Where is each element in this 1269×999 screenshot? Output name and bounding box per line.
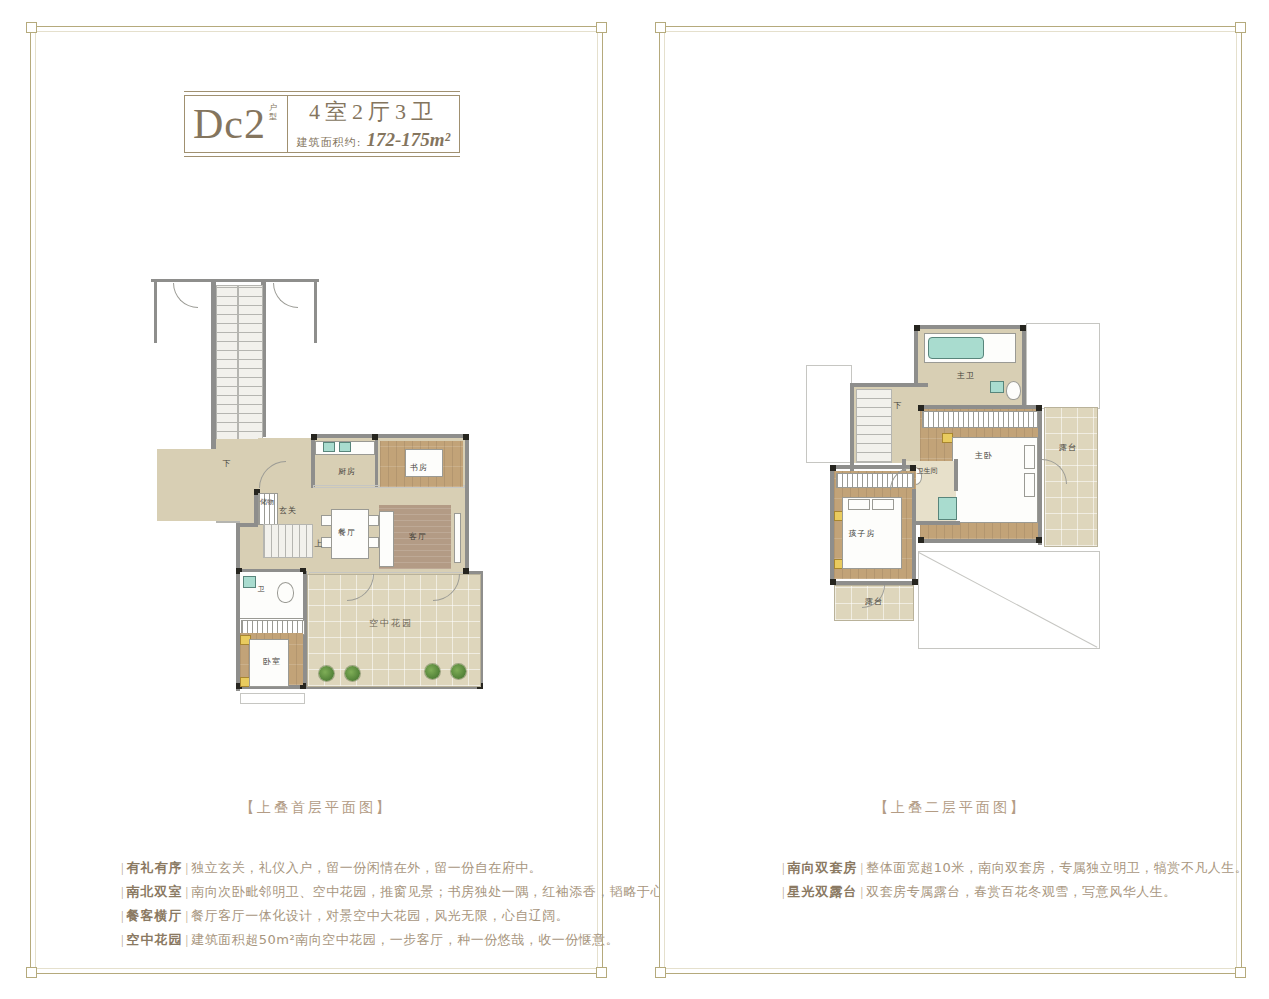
unit-spec-cell: 4室2厅3卫 建筑面积约: 172-175m² — [288, 96, 459, 152]
wall-segment — [465, 438, 469, 574]
sink-icon — [339, 442, 351, 452]
bracket: | — [183, 908, 192, 923]
bracket: | — [183, 884, 192, 899]
feature-text: 餐厅客厅一体化设计，对景空中大花园，风光无限，心自辽阔。 — [191, 908, 569, 923]
sink-icon — [323, 442, 335, 452]
roof-outline — [806, 365, 852, 463]
floor-plan-first-floor: 下 厨房 书房 储物 玄关 餐厅 客厅 上 卫 卧室 空中花园 — [151, 271, 481, 701]
wall-segment — [850, 383, 854, 471]
wall-segment — [914, 325, 1026, 329]
feature-text: 建筑面积超50m²南向空中花园，一步客厅，种一份悠哉，收一份惬意。 — [191, 932, 619, 947]
feature-bullet: |有礼有序|独立玄关，礼仪入户，留一份闲情在外，留一份自在府中。 — [31, 856, 602, 880]
wall-segment — [954, 459, 958, 491]
feature-text: 整体面宽超10米，南向双套房，专属独立明卫，犒赏不凡人生。 — [866, 860, 1248, 875]
wall-segment — [918, 539, 1042, 543]
door-arc — [173, 283, 198, 308]
unit-area-value: 172-175m² — [367, 129, 451, 150]
bracket: | — [183, 860, 192, 875]
sink-icon — [990, 381, 1004, 393]
stairs — [856, 389, 892, 463]
feature-bullet: |南向双套房|整体面宽超10米，南向双套房，专属独立明卫，犒赏不凡人生。 — [660, 856, 1241, 880]
feature-title: 餐客横厅 — [127, 908, 183, 923]
feature-text: 独立玄关，礼仪入户，留一份闲情在外，留一份自在府中。 — [191, 860, 542, 875]
frame-corner — [596, 967, 607, 978]
wall-corner-block — [918, 405, 924, 411]
wall-corner-block — [830, 579, 836, 585]
bedroom-label: 卧室 — [263, 656, 281, 667]
sky-garden-label: 空中花园 — [369, 617, 413, 630]
wall-corner-block — [372, 434, 378, 440]
wall-corner-block — [830, 465, 836, 471]
frame-corner — [1235, 967, 1246, 978]
wall-segment — [850, 383, 928, 387]
pillow — [1024, 473, 1035, 497]
plan-caption-first-floor: 【上叠首层平面图】 — [31, 799, 602, 817]
balcony-outline — [240, 693, 305, 704]
chair — [368, 515, 379, 526]
pillow — [872, 499, 894, 510]
plan-caption-second-floor: 【上叠二层平面图】 — [660, 799, 1241, 817]
stairs — [263, 524, 313, 558]
bracket: | — [118, 860, 127, 875]
plant-icon — [345, 666, 360, 681]
wall-segment — [151, 279, 319, 282]
dining-label: 餐厅 — [338, 527, 356, 538]
right-panel-second-floor: 主卫 下 主卧 露台 卫生间 孩子房 露台 【上叠二层平面图】 |南向双套房|整… — [659, 26, 1242, 974]
unit-model-cell: Dc2 户型 — [185, 96, 288, 152]
roof-outline — [1026, 323, 1100, 409]
wall-segment — [154, 279, 157, 343]
wall-corner-block — [1020, 325, 1026, 331]
sink-icon — [243, 576, 256, 588]
feature-text: 南向次卧毗邻明卫、空中花园，推窗见景；书房独处一隅，红袖添香，韬略于心。 — [191, 884, 677, 899]
plant-icon — [425, 664, 440, 679]
study-label: 书房 — [410, 462, 428, 473]
feature-title: 有礼有序 — [127, 860, 183, 875]
bracket: | — [118, 908, 127, 923]
wall-corner-block — [918, 537, 924, 543]
bath-label: 卫 — [258, 584, 265, 594]
unit-area-label: 建筑面积约: — [297, 136, 362, 149]
plant-icon — [319, 666, 334, 681]
feature-bullet: |餐客横厅|餐厅客厅一体化设计，对景空中大花园，风光无限，心自辽阔。 — [31, 904, 602, 928]
kitchen-label: 厨房 — [338, 466, 356, 477]
pillow — [848, 499, 870, 510]
foyer-label: 玄关 — [279, 505, 297, 516]
unit-header-box: Dc2 户型 4室2厅3卫 建筑面积约: 172-175m² — [184, 95, 460, 153]
unit-model: Dc2 — [193, 103, 266, 145]
wall-corner-block — [1036, 537, 1042, 543]
plant-icon — [451, 664, 466, 679]
tv-console — [454, 513, 461, 563]
feature-bullets: |有礼有序|独立玄关，礼仪入户，留一份闲情在外，留一份自在府中。 |南北双室|南… — [31, 856, 602, 952]
toilet-icon — [1006, 381, 1021, 400]
wall-segment — [912, 489, 916, 585]
east-terrace-label: 露台 — [1059, 442, 1077, 453]
door-arc — [273, 283, 298, 308]
bracket: | — [858, 884, 867, 899]
floor-plan-second-floor: 主卫 下 主卧 露台 卫生间 孩子房 露台 — [806, 319, 1106, 649]
feature-bullet: |空中花园|建筑面积超50m²南向空中花园，一步客厅，种一份悠哉，收一份惬意。 — [31, 928, 602, 952]
feature-title: 空中花园 — [127, 932, 183, 947]
wall-corner-block — [463, 434, 469, 440]
wall-segment — [314, 279, 317, 343]
frame-corner — [26, 967, 37, 978]
feature-bullet: |星光双露台|双套房专属露台，春赏百花冬观雪，写意风华人生。 — [660, 880, 1241, 904]
left-panel-first-floor: Dc2 户型 4室2厅3卫 建筑面积约: 172-175m² — [30, 26, 603, 974]
wall-segment — [311, 434, 469, 438]
bracket: | — [183, 932, 192, 947]
frame-corner — [655, 22, 666, 33]
wall-segment — [1022, 325, 1026, 409]
wall-corner-block — [1036, 405, 1042, 411]
pillow — [1024, 445, 1035, 469]
unit-model-tag: 户型 — [269, 103, 279, 121]
feature-bullets: |南向双套房|整体面宽超10米，南向双套房，专属独立明卫，犒赏不凡人生。 |星光… — [660, 856, 1241, 904]
bathroom-label: 卫生间 — [917, 466, 938, 476]
living-label: 客厅 — [409, 531, 427, 542]
wall-corner-block — [311, 434, 317, 440]
frame-corner — [655, 967, 666, 978]
bracket: | — [118, 884, 127, 899]
unit-header: Dc2 户型 4室2厅3卫 建筑面积约: 172-175m² — [184, 91, 460, 157]
feature-title: 南向双套房 — [788, 860, 858, 875]
master-bedroom-label: 主卧 — [975, 450, 993, 461]
feature-bullet: |南北双室|南向次卧毗邻明卫、空中花园，推窗见景；书房独处一隅，红袖添香，韬略于… — [31, 880, 602, 904]
wardrobe — [922, 411, 1038, 428]
shower-icon — [938, 497, 957, 520]
feature-text: 双套房专属露台，春赏百花冬观雪，写意风华人生。 — [866, 884, 1177, 899]
chair — [321, 515, 332, 526]
unit-layout: 4室2厅3卫 — [309, 97, 438, 127]
wall-segment — [918, 405, 1042, 409]
stairs-down-label: 下 — [894, 400, 903, 411]
toilet-icon — [277, 582, 294, 603]
storage-label: 储物 — [260, 497, 274, 507]
bracket: | — [858, 860, 867, 875]
wall-segment — [375, 438, 378, 488]
feature-title: 南北双室 — [127, 884, 183, 899]
frame-corner — [1235, 22, 1246, 33]
frame-corner — [26, 22, 37, 33]
unit-area: 建筑面积约: 172-175m² — [297, 129, 451, 151]
bathtub-water — [928, 337, 984, 359]
bracket: | — [779, 884, 788, 899]
wall-segment — [830, 465, 834, 585]
chair — [368, 537, 379, 548]
master-bath-label: 主卫 — [957, 370, 975, 381]
bracket: | — [779, 860, 788, 875]
stairs-down-label: 下 — [223, 458, 232, 469]
south-terrace-label: 露台 — [865, 596, 883, 607]
wall-corner-block — [910, 465, 916, 471]
bracket: | — [118, 932, 127, 947]
kids-room-label: 孩子房 — [849, 528, 876, 539]
wall-segment — [830, 465, 914, 469]
frame-corner — [596, 22, 607, 33]
wall-corner-block — [912, 579, 918, 585]
feature-title: 星光双露台 — [788, 884, 858, 899]
sofa — [379, 511, 394, 567]
wall-corner-block — [914, 325, 920, 331]
stairs-up-label: 上 — [315, 538, 324, 549]
